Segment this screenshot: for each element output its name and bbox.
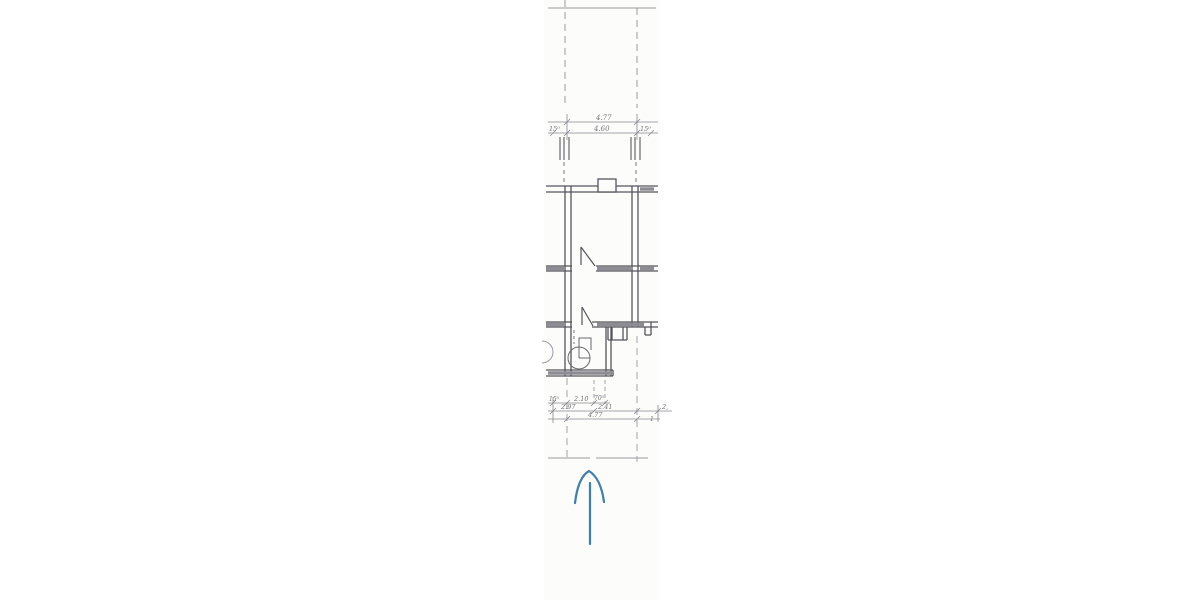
- dimension-wall-left: 15⁰: [549, 125, 560, 133]
- dim-row2-left: 2.97: [560, 403, 576, 411]
- dim-row1-right: 70⁵: [594, 395, 605, 402]
- scan-strip-background: [544, 0, 660, 600]
- dimension-wall-right: 15⁰: [640, 125, 651, 133]
- dim-right-mark: 1: [650, 416, 654, 423]
- dimension-total-lower: 4.60: [593, 125, 610, 133]
- dim-row3-total: 4.77: [587, 411, 603, 419]
- dim-row1-left: 15⁰: [549, 396, 560, 403]
- chimney-box: [598, 179, 616, 192]
- dim-row2-mid: 2.41: [597, 403, 612, 411]
- floor-plan-drawing: 4.77 4.60 15⁰ 15⁰: [0, 0, 1200, 600]
- dim-row2-right: 2,: [661, 403, 668, 411]
- dimension-total-upper: 4.77: [595, 114, 612, 122]
- dim-row1-mid: 2.10: [573, 395, 588, 403]
- scanned-floor-plan-page: 4.77 4.60 15⁰ 15⁰: [0, 0, 1200, 600]
